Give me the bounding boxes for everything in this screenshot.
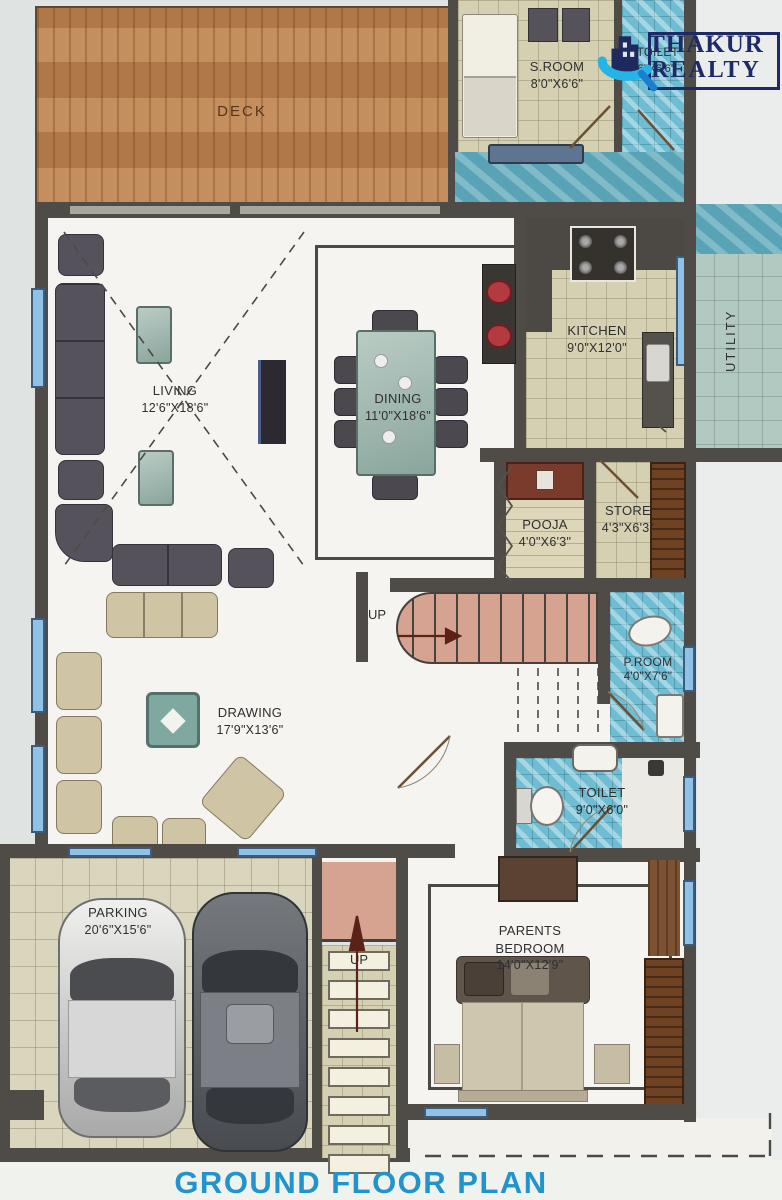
up-mid-text: UP — [368, 607, 386, 622]
right-margin — [697, 0, 782, 1200]
stair-step — [328, 1096, 390, 1116]
store-dims: 4'3"X6'3" — [582, 520, 674, 537]
stove-burner — [614, 261, 627, 274]
wall-utility-bottom — [690, 448, 782, 462]
dining-name: DINING — [338, 390, 458, 408]
kitchen-label: KITCHEN 9'0"X12'0" — [537, 322, 657, 356]
deck-name: DECK — [142, 102, 342, 122]
bed-footboard — [458, 1090, 588, 1102]
shower-head — [648, 760, 664, 776]
living-dims: 12'6"X18'6" — [110, 400, 240, 417]
living-coffee-table — [138, 450, 174, 506]
stair-step — [328, 1125, 390, 1145]
drawing-bottom-window — [237, 847, 317, 857]
toilet-label: TOILET 9'0"X6'0" — [546, 784, 658, 818]
drawing-label: DRAWING 17'9"X13'6" — [190, 704, 310, 738]
wall-stairs-top — [390, 578, 690, 592]
stove-burner — [579, 235, 592, 248]
kitchen-name: KITCHEN — [537, 322, 657, 340]
car-gray-sunroof — [226, 1004, 274, 1044]
bedroom-right-window — [683, 880, 695, 946]
parking-dims: 20'6"X15'6" — [58, 922, 178, 939]
wall-kitchen-bottom — [480, 448, 690, 462]
logo-text-line2: REALTY — [636, 58, 776, 82]
brand-logo: THAKUR REALTY — [596, 28, 782, 94]
living-window-2 — [31, 288, 45, 388]
parking-pillar — [0, 1090, 44, 1120]
bedroom-wood-panel — [648, 860, 680, 956]
wall-stairs-bottom-left — [312, 858, 322, 1158]
living-ottoman — [228, 548, 274, 588]
living-sofa-vertical — [55, 283, 105, 455]
dining-chair — [372, 474, 418, 500]
toilet-name: TOILET — [546, 784, 658, 802]
wash-basin — [486, 324, 512, 348]
floor-plan-canvas: UP — [0, 0, 782, 1200]
dining-plate — [382, 430, 396, 444]
wall-proom-left — [598, 592, 610, 704]
living-name: LIVING — [110, 382, 240, 400]
proom-dims: 4'0"X7'6" — [606, 670, 690, 686]
parents-dims: 14'0"X12'9" — [470, 957, 590, 974]
deck-slider-glass — [240, 206, 440, 214]
deck-label: DECK — [142, 102, 342, 122]
proom-label: P.ROOM 4'0"X7'6" — [606, 654, 690, 686]
parking-name: PARKING — [58, 904, 178, 922]
drawing-chair — [56, 780, 102, 834]
living-sofa-horizontal — [112, 544, 222, 586]
wash-counter — [482, 264, 516, 364]
sroom-name: S.ROOM — [512, 58, 602, 76]
utility-top-band — [690, 204, 782, 254]
store-name: STORE — [582, 502, 674, 520]
living-ottoman — [58, 234, 104, 276]
up-bottom-label: UP — [350, 952, 368, 967]
stair-step — [328, 980, 390, 1000]
car-silver-rear-window — [74, 1078, 170, 1112]
stove-burner — [614, 235, 627, 248]
proom-wc — [656, 694, 684, 738]
proom-name: P.ROOM — [606, 654, 690, 670]
store-label: STORE 4'3"X6'3" — [582, 502, 674, 536]
sroom-cabinet — [528, 8, 558, 42]
car-gray-rear-window — [206, 1088, 294, 1124]
sroom-bed-blanket — [464, 76, 516, 136]
utility-label: UTILITY — [722, 286, 748, 396]
porch-floor — [398, 1118, 772, 1160]
drawing-window — [31, 745, 45, 833]
stove-burner — [579, 261, 592, 274]
bed-side-table — [434, 1044, 460, 1084]
wall-drawing-hall — [356, 572, 368, 662]
car-silver-windshield — [70, 958, 174, 1002]
dining-plate — [398, 376, 412, 390]
dining-dims: 11'0"X18'6" — [338, 408, 458, 425]
toilet-washbasin — [572, 744, 618, 772]
wall-toilet-left — [504, 742, 516, 860]
bed-mattress — [462, 1002, 584, 1094]
stairs-bottom-run: UP — [322, 945, 396, 1158]
dining-label: DINING 11'0"X18'6" — [338, 390, 458, 424]
bedroom-bottom-window — [424, 1107, 488, 1118]
car-gray-windshield — [202, 950, 298, 994]
bedroom-dresser — [498, 856, 578, 902]
stair-step — [328, 1067, 390, 1087]
living-sofa-corner — [55, 504, 113, 562]
plan-title: GROUND FLOOR PLAN — [0, 1167, 722, 1198]
dining-plate — [374, 354, 388, 368]
up-mid-label: UP — [368, 608, 386, 621]
toilet-dims: 9'0"X6'0" — [546, 802, 658, 819]
logo-text-line1: THAKUR — [636, 32, 776, 57]
stairs-bottom-landing — [322, 862, 396, 942]
stair-step — [328, 1009, 390, 1029]
kitchen-dims: 9'0"X12'0" — [537, 340, 657, 357]
stair-step: UP — [328, 951, 390, 971]
sroom-label: S.ROOM 8'0"X6'6" — [512, 58, 602, 92]
drawing-chair — [56, 652, 102, 710]
bedroom-wardrobe — [644, 958, 684, 1110]
sroom-bench — [488, 144, 584, 164]
sroom-dims: 8'0"X6'6" — [512, 76, 602, 93]
parking-label: PARKING 20'6"X15'6" — [58, 904, 178, 938]
drawing-name: DRAWING — [190, 704, 310, 722]
wash-basin — [486, 280, 512, 304]
car-silver-roof — [68, 1000, 176, 1078]
living-label: LIVING 12'6"X18'6" — [110, 382, 240, 416]
utility-name: UTILITY — [722, 286, 740, 396]
pooja-dims: 4'0"X6'3" — [500, 534, 590, 551]
toilet-window — [683, 776, 695, 832]
drawing-window — [31, 618, 45, 713]
pooja-name: POOJA — [500, 516, 590, 534]
parents-name-1: PARENTS — [470, 922, 590, 940]
dining-chair — [434, 356, 468, 384]
bed-side-table — [594, 1044, 630, 1084]
kitchen-stove — [570, 226, 636, 282]
drawing-bottom-window — [68, 847, 152, 857]
sroom-cabinet — [562, 8, 590, 42]
parents-bedroom-label: PARENTS BEDROOM 14'0"X12'9" — [470, 922, 590, 974]
drawing-chair — [56, 716, 102, 774]
parents-name-2: BEDROOM — [470, 940, 590, 958]
living-coffee-table — [136, 306, 172, 364]
drawing-sofa — [106, 592, 218, 638]
stair-step — [328, 1038, 390, 1058]
deck-slider-glass — [70, 206, 230, 214]
drawing-dims: 17'9"X13'6" — [190, 722, 310, 739]
tv-unit — [258, 360, 286, 444]
pooja-label: POOJA 4'0"X6'3" — [500, 516, 590, 550]
living-ottoman — [58, 460, 104, 500]
pooja-idol — [536, 470, 554, 490]
stairs-mid — [396, 592, 598, 664]
